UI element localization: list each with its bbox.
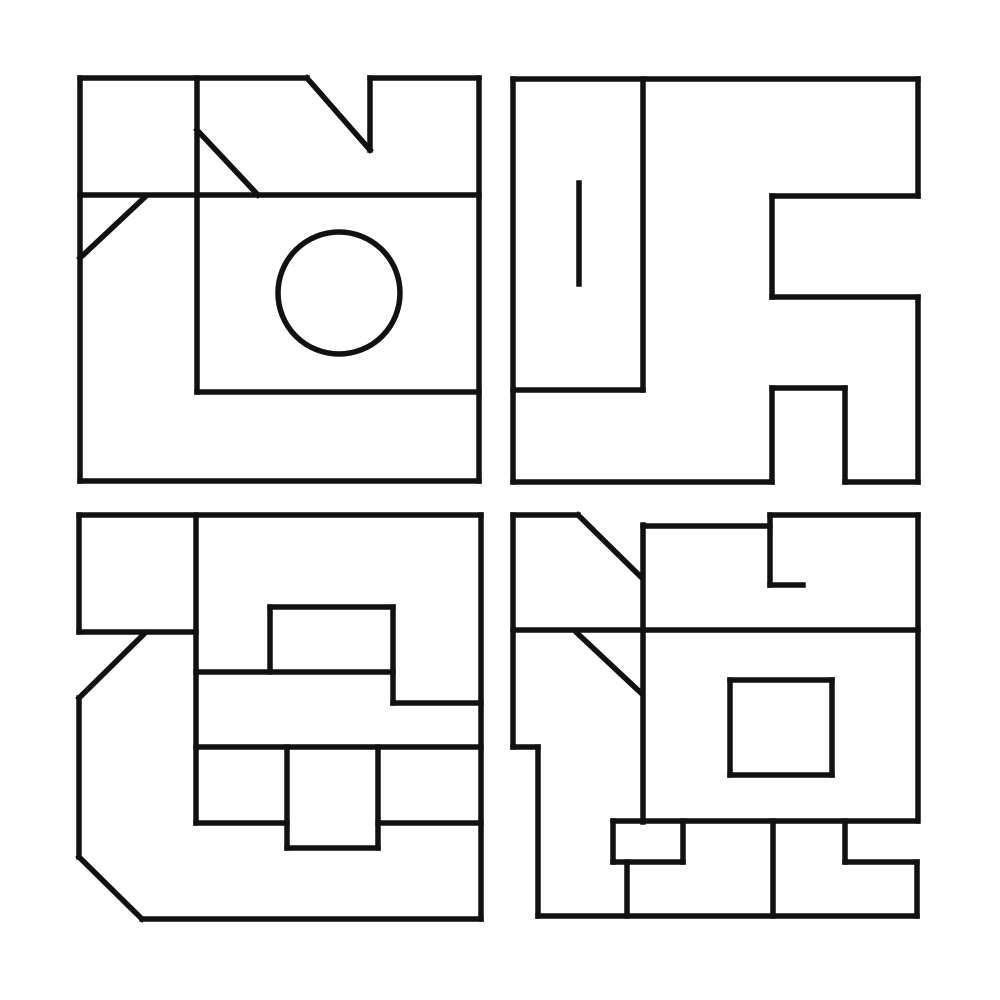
bottom-right-glyph-segment [578, 515, 641, 577]
line-art-stage [0, 0, 1000, 1000]
top-left-glyph [80, 78, 479, 481]
bottom-right-glyph-segment [577, 633, 641, 693]
line-art-svg [0, 0, 1000, 1000]
bottom-left-glyph-segment [79, 633, 145, 698]
bottom-left-glyph-segment [79, 857, 142, 919]
top-left-glyph-segment [80, 197, 145, 258]
top-left-glyph-segment [197, 130, 258, 195]
bottom-right-glyph [513, 515, 918, 916]
top-right-glyph [513, 79, 918, 482]
top-left-glyph-segment [307, 78, 370, 150]
bottom-left-glyph [79, 515, 481, 919]
top-left-glyph-circle [278, 232, 400, 354]
